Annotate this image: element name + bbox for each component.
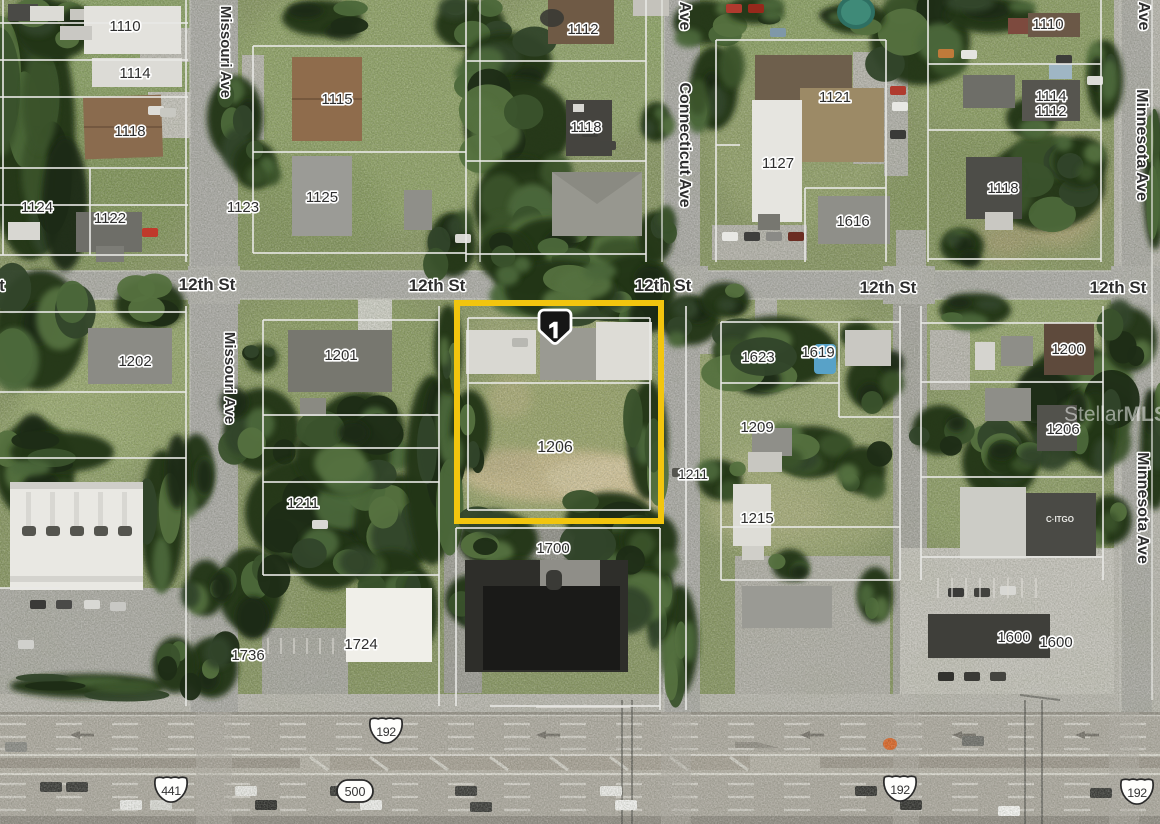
svg-text:Ave: Ave xyxy=(1135,2,1152,31)
svg-text:1201: 1201 xyxy=(324,347,357,364)
svg-text:1200: 1200 xyxy=(1051,341,1084,358)
svg-text:1122: 1122 xyxy=(94,210,126,227)
svg-text:1600: 1600 xyxy=(1039,634,1072,651)
svg-text:1127: 1127 xyxy=(762,155,794,172)
svg-text:192: 192 xyxy=(890,783,910,797)
svg-text:1206: 1206 xyxy=(537,439,573,456)
svg-text:1619: 1619 xyxy=(801,344,834,361)
svg-text:1124: 1124 xyxy=(21,199,53,216)
svg-text:1211: 1211 xyxy=(678,466,708,482)
svg-text:1623: 1623 xyxy=(741,349,774,366)
svg-text:Connecticut Ave: Connecticut Ave xyxy=(676,82,693,207)
svg-text:12th St: 12th St xyxy=(179,275,236,294)
svg-text:12th St: 12th St xyxy=(1090,278,1147,297)
svg-text:1112: 1112 xyxy=(1035,103,1066,120)
svg-text:441: 441 xyxy=(161,784,181,798)
svg-text:1112: 1112 xyxy=(567,21,598,38)
svg-text:1209: 1209 xyxy=(740,419,773,436)
svg-text:1215: 1215 xyxy=(740,510,773,527)
svg-text:Minnesota Ave: Minnesota Ave xyxy=(1133,89,1150,201)
svg-text:500: 500 xyxy=(345,785,366,799)
svg-text:1700: 1700 xyxy=(536,540,569,557)
svg-text:1115: 1115 xyxy=(321,91,352,108)
svg-text:192: 192 xyxy=(1127,786,1147,800)
svg-text:12th St: 12th St xyxy=(860,278,917,297)
svg-text:t: t xyxy=(0,276,5,295)
svg-text:1211: 1211 xyxy=(287,495,319,512)
svg-text:192: 192 xyxy=(376,725,396,739)
svg-text:1114: 1114 xyxy=(119,65,150,82)
svg-text:1600: 1600 xyxy=(997,629,1030,646)
svg-text:12th St: 12th St xyxy=(409,276,466,295)
svg-text:Missouri Ave: Missouri Ave xyxy=(221,332,238,424)
svg-text:12th St: 12th St xyxy=(635,276,692,295)
svg-text:1724: 1724 xyxy=(344,636,377,653)
svg-text:Missouri Ave: Missouri Ave xyxy=(217,6,234,98)
svg-text:1121: 1121 xyxy=(819,89,851,106)
svg-text:1110: 1110 xyxy=(1032,16,1063,33)
svg-text:1123: 1123 xyxy=(227,199,259,216)
svg-text:Minnesota Ave: Minnesota Ave xyxy=(1134,452,1151,564)
svg-text:StellarMLS: StellarMLS xyxy=(1064,403,1160,426)
svg-text:1125: 1125 xyxy=(306,189,338,206)
svg-text:C·ITGO: C·ITGO xyxy=(1046,515,1074,524)
svg-text:Ave: Ave xyxy=(676,2,693,31)
svg-text:1118: 1118 xyxy=(987,180,1018,197)
svg-text:1616: 1616 xyxy=(836,213,869,230)
svg-text:1118: 1118 xyxy=(114,123,145,140)
svg-text:1202: 1202 xyxy=(118,353,151,370)
svg-text:1118: 1118 xyxy=(570,119,601,136)
svg-text:1736: 1736 xyxy=(231,647,264,664)
svg-text:1110: 1110 xyxy=(109,18,140,35)
